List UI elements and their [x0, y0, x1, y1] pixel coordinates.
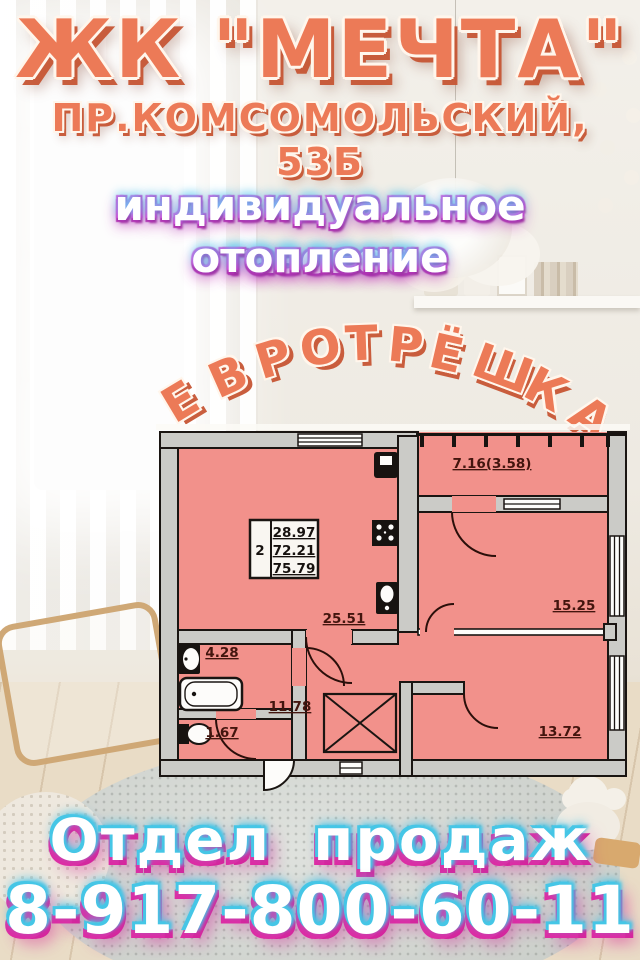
label-bathroom-area: 4.28: [205, 645, 238, 661]
window-kitchen-top: [298, 434, 362, 446]
arch-letter: Т: [344, 315, 379, 372]
sales-department-label: Отдел продаж: [0, 806, 640, 874]
arch-letter: Р: [249, 327, 299, 391]
wall-left: [160, 432, 178, 776]
spec-area-total: 75.79: [273, 561, 316, 577]
complex-name-title: ЖК "МЕЧТА": [0, 6, 640, 94]
label-balcony-area: 7.16(3.58): [453, 456, 532, 472]
arch-letter: Р: [385, 316, 425, 375]
arch-letter: В: [200, 344, 256, 410]
door-entry: [264, 760, 294, 790]
phone-number: 8-917-800-60-11: [0, 872, 640, 949]
spec-area-living: 28.97: [273, 525, 316, 541]
spec-area-main: 72.21: [273, 543, 316, 559]
window-bedroom-bottom: [610, 656, 624, 730]
arch-letter: О: [296, 317, 345, 379]
real-estate-ad-poster: ЖК "МЕЧТА" ПР.КОМСОМОЛЬСКИЙ, 53Б индивид…: [0, 0, 640, 960]
fridge-icon: [374, 452, 398, 478]
wall-kitchen-right: [398, 436, 418, 632]
label-hall-area: 11.78: [269, 699, 312, 715]
bathroom-sink-icon: [178, 644, 200, 674]
arch-letter: Ё: [424, 323, 469, 385]
label-kitchen-living-area: 25.51: [323, 611, 366, 627]
feature-text-line2: отопление: [0, 232, 640, 285]
balcony-rail: [416, 433, 626, 436]
label-bedroom-right-area: 15.25: [553, 598, 596, 614]
wall-shelf: [414, 296, 640, 308]
floor-plan-drawing: 2 28.97 72.21 75.79 7.16(3.58) 25.51 15.…: [152, 424, 634, 796]
wall-post: [604, 624, 616, 640]
wall-bottom: [160, 760, 626, 776]
plan-paper-edge: [156, 424, 630, 430]
kitchen-sink-icon: [376, 582, 398, 614]
bathtub-icon: [180, 678, 242, 710]
window-bedroom-right: [610, 536, 624, 616]
address-line: ПР.КОМСОМОЛЬСКИЙ, 53Б: [0, 96, 640, 184]
window-bottom-wall: [340, 762, 362, 774]
wall-kitchen-bottom: [352, 630, 398, 644]
wall-bedroom-bottom-left: [400, 682, 412, 776]
spec-room-count: 2: [255, 543, 264, 559]
stove-icon: [372, 520, 398, 546]
floor-plan: 2 28.97 72.21 75.79 7.16(3.58) 25.51 15.…: [152, 424, 634, 796]
window-balcony-wall: [504, 499, 560, 509]
label-wc-area: 1.67: [205, 725, 238, 741]
wall-bathroom-top: [178, 630, 292, 644]
apartment-spec-table: 2 28.97 72.21 75.79: [250, 520, 318, 578]
label-bedroom-bottom-area: 13.72: [539, 724, 582, 740]
wall-top: [160, 432, 418, 448]
